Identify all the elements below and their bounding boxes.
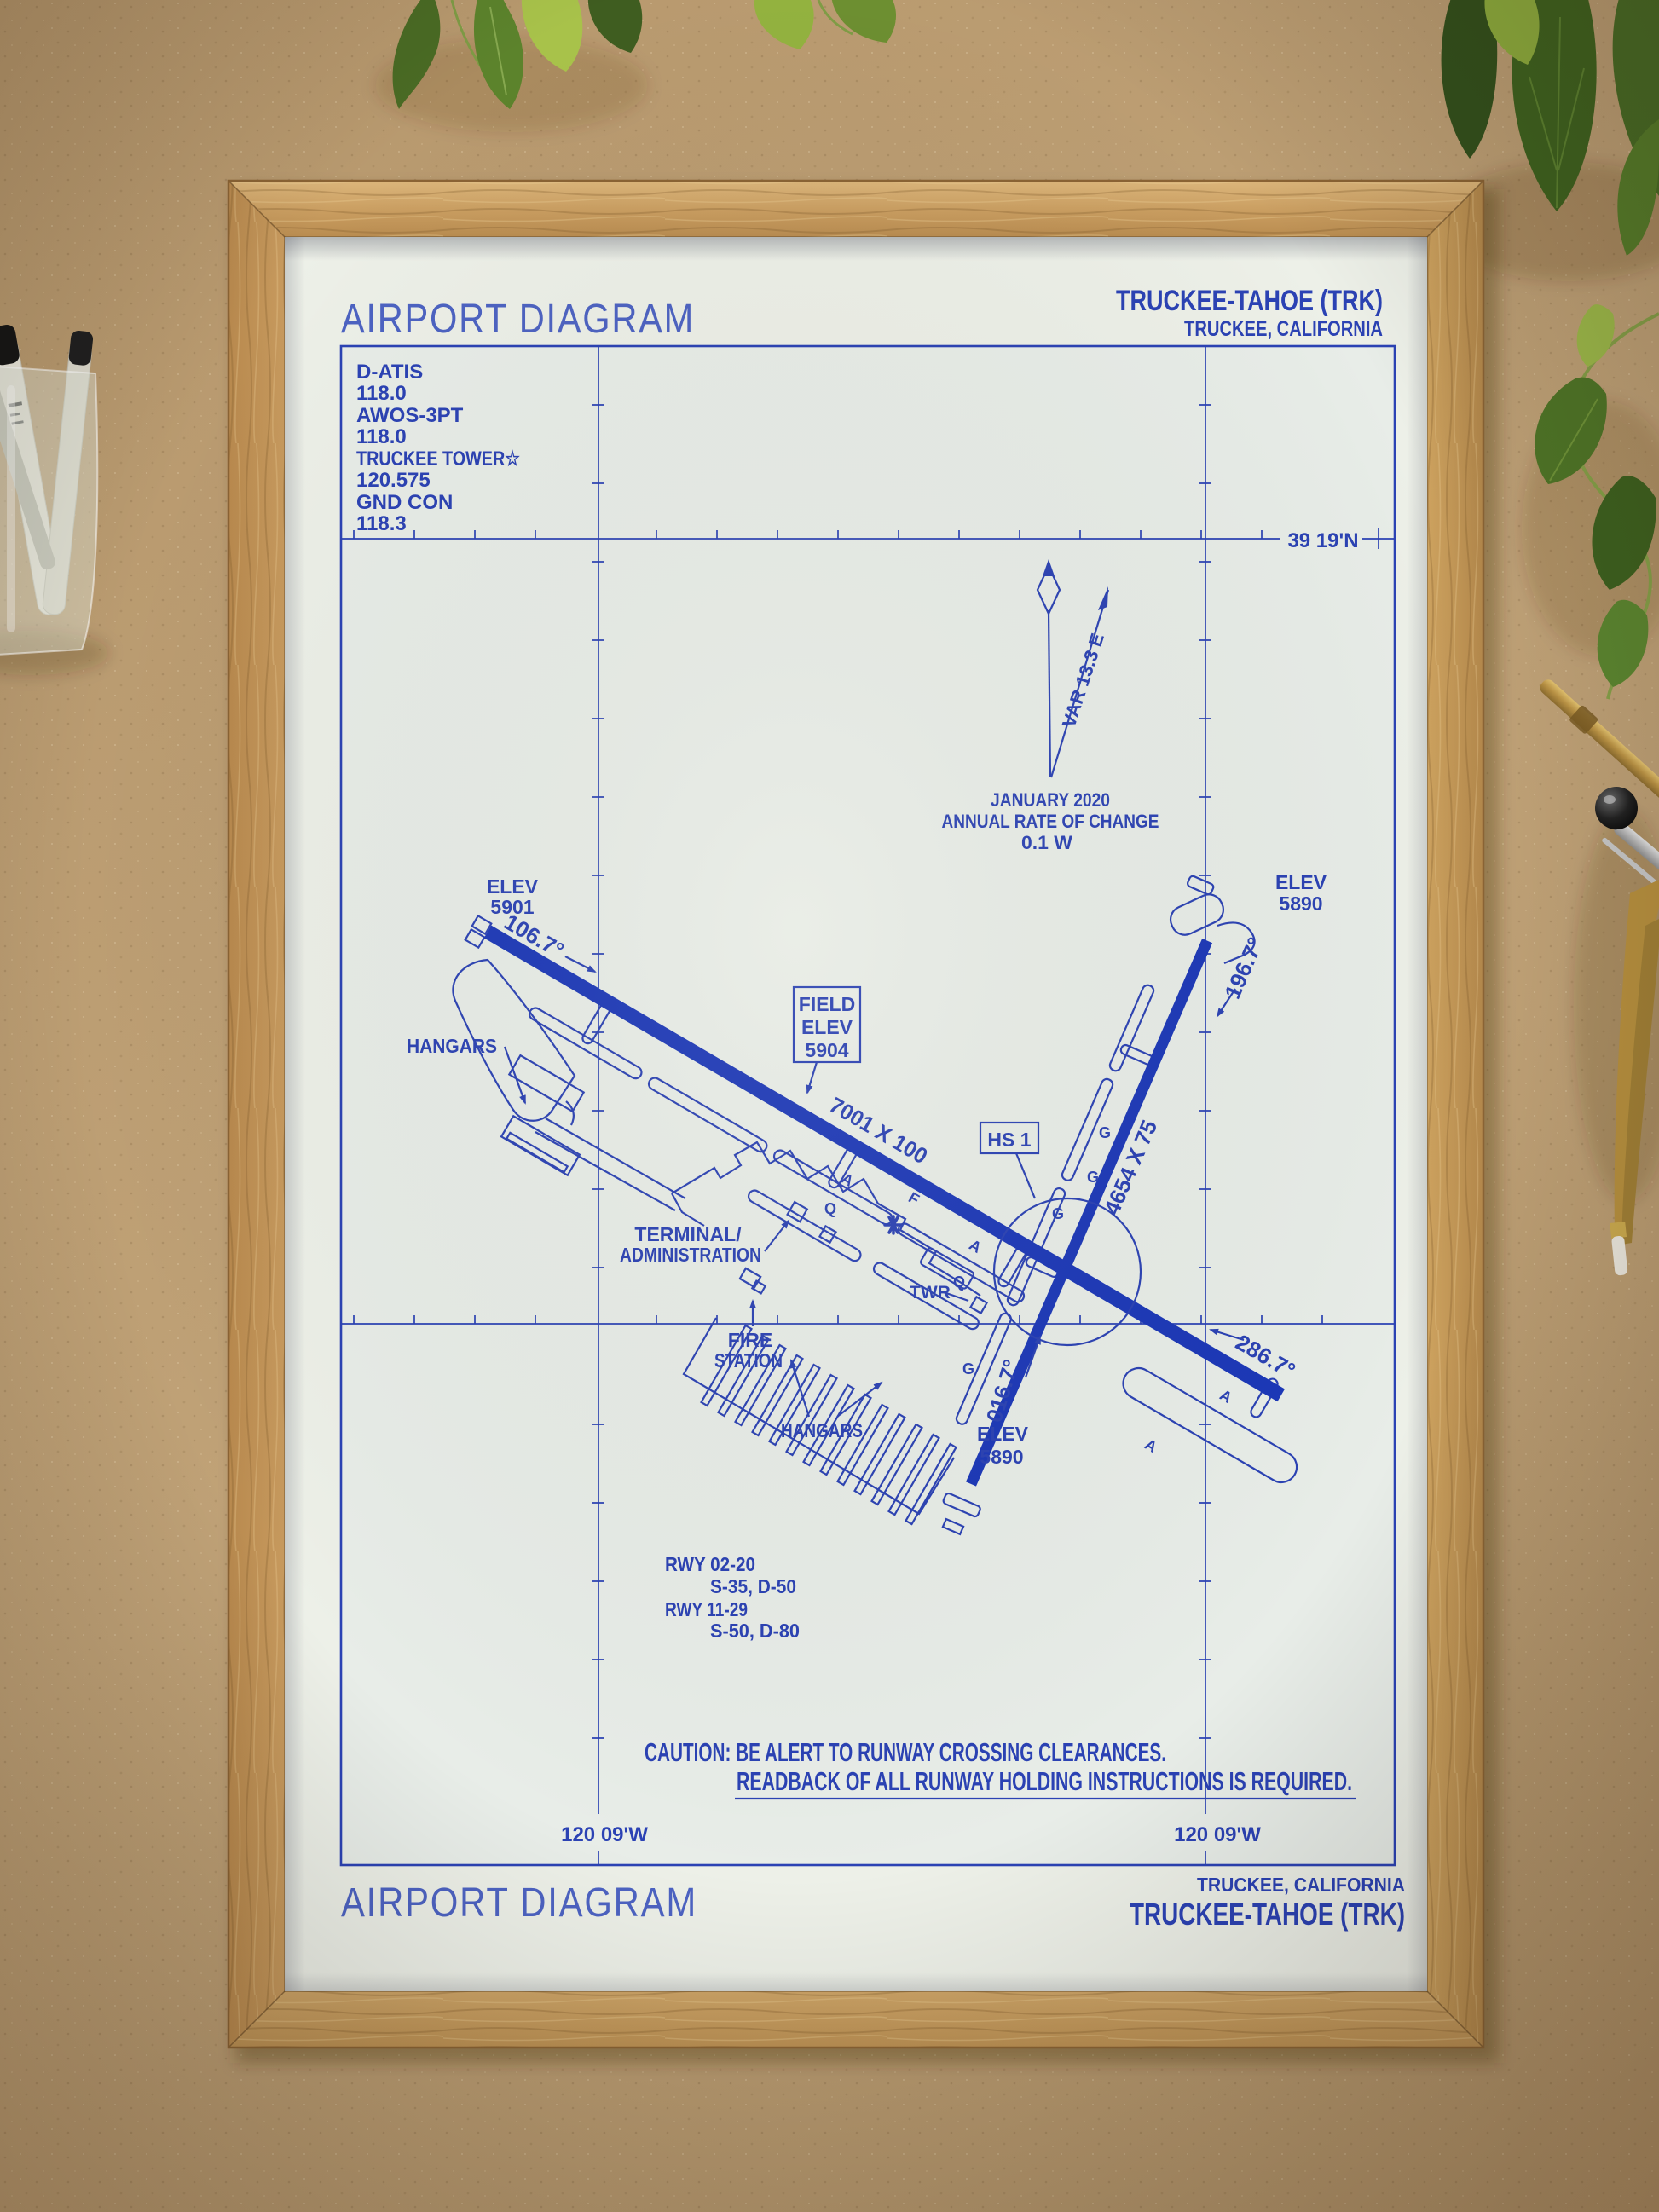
elev-rwy11-line1: ELEV (487, 875, 539, 898)
hot-spot-label: HS 1 (987, 1129, 1031, 1151)
footer-airport: TRUCKEE-TAHOE (TRK) (1130, 1897, 1405, 1932)
caution-line1: CAUTION: BE ALERT TO RUNWAY CROSSING CLE… (645, 1737, 1166, 1767)
elev-rwy20-line1: ELEV (1275, 871, 1327, 893)
footer-title: AIRPORT DIAGRAM (341, 1880, 697, 1926)
elev-rwy02-line1: ELEV (977, 1423, 1029, 1445)
freq-line: 118.0 (356, 382, 407, 405)
taxiway-g-label: G (1099, 1124, 1111, 1141)
runway-data-line: RWY 02-20 (665, 1553, 755, 1575)
field-elev-line: FIELD (799, 993, 855, 1015)
taxiway-g-label: G (1087, 1169, 1099, 1186)
freq-line: 118.0 (356, 425, 407, 448)
runway-data-line: RWY 11-29 (665, 1598, 748, 1620)
freq-line: 118.3 (356, 512, 407, 535)
field-elev-line: ELEV (801, 1016, 853, 1038)
photo-scene: AIRPORT DIAGRAM TRUCKEE-TAHOE (TRK) TRUC… (0, 0, 1659, 2212)
taxiway-q-label: Q (824, 1200, 836, 1217)
freq-line: AWOS-3PT (356, 404, 464, 427)
terminal-label-line1: TERMINAL/ (634, 1223, 742, 1245)
terminal-label-line2: ADMINISTRATION (620, 1244, 761, 1266)
longitude-label-right: 120 09'W (1174, 1823, 1261, 1846)
footer-city: TRUCKEE, CALIFORNIA (1197, 1874, 1405, 1896)
field-elev-line: 5904 (805, 1039, 848, 1061)
tower-label: TWR (910, 1283, 951, 1302)
freq-line: GND CON (356, 491, 453, 514)
latitude-label: 39 19'N (1287, 529, 1358, 552)
taxiway-q-label: Q (953, 1273, 965, 1291)
hangars-west-label: HANGARS (407, 1035, 497, 1057)
taxiway-g-label: G (1052, 1205, 1064, 1222)
freq-line-tower: TRUCKEE TOWER☆ (356, 448, 520, 471)
variation-rate-value: 0.1 W (1021, 832, 1072, 853)
freq-line: 120.575 (356, 469, 431, 492)
variation-rate: ANNUAL RATE OF CHANGE (942, 811, 1159, 832)
elev-rwy20-line2: 5890 (1279, 892, 1322, 915)
elev-rwy02-line2: 5890 (980, 1446, 1023, 1468)
fire-station-line1: FIRE (728, 1329, 772, 1351)
freq-line: D-ATIS (356, 361, 423, 384)
runway-data-line: S-50, D-80 (710, 1620, 800, 1642)
hangars-south-label: HANGARS (781, 1419, 863, 1441)
taxiway-g-label: G (962, 1360, 974, 1377)
runway-data-line: S-35, D-50 (710, 1575, 796, 1597)
longitude-label-left: 120 09'W (561, 1823, 648, 1846)
airport-city: TRUCKEE, CALIFORNIA (1184, 317, 1383, 341)
variation-date: JANUARY 2020 (991, 789, 1110, 811)
airport-name: TRUCKEE-TAHOE (TRK) (1116, 285, 1383, 317)
fire-station-line2: STATION (714, 1349, 783, 1372)
caution-line2: READBACK OF ALL RUNWAY HOLDING INSTRUCTI… (737, 1766, 1352, 1796)
page-title: AIRPORT DIAGRAM (341, 297, 695, 342)
